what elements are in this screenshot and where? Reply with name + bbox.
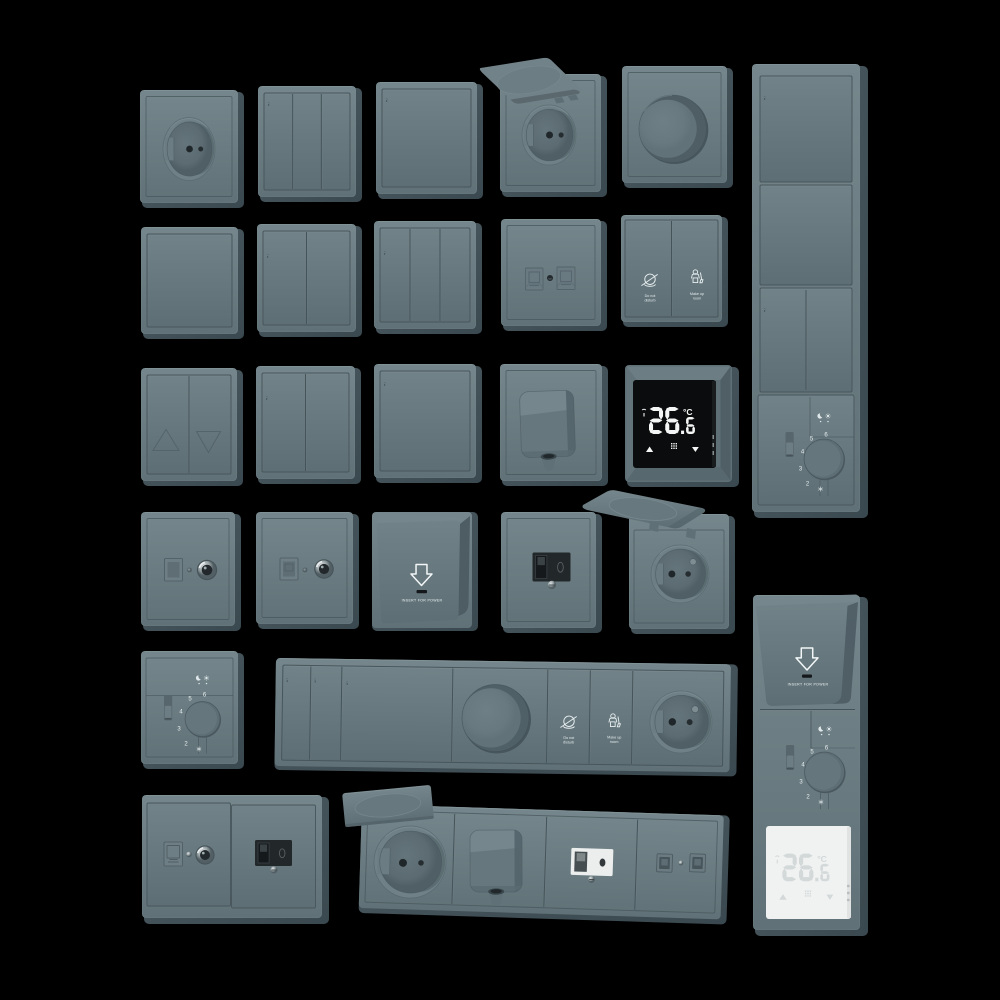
svg-text:disturb: disturb [644, 299, 655, 303]
svg-text:Do not: Do not [645, 294, 656, 298]
svg-text:INSERT FOR POWER: INSERT FOR POWER [788, 683, 829, 687]
svg-text:Make up: Make up [690, 292, 704, 296]
svg-text:disturb: disturb [563, 740, 574, 744]
svg-text:INSERT FOR POWER: INSERT FOR POWER [402, 599, 443, 603]
svg-text:room: room [610, 740, 618, 744]
svg-text:°C: °C [683, 407, 693, 417]
svg-text:°C: °C [817, 854, 827, 864]
svg-text:room: room [693, 297, 701, 301]
